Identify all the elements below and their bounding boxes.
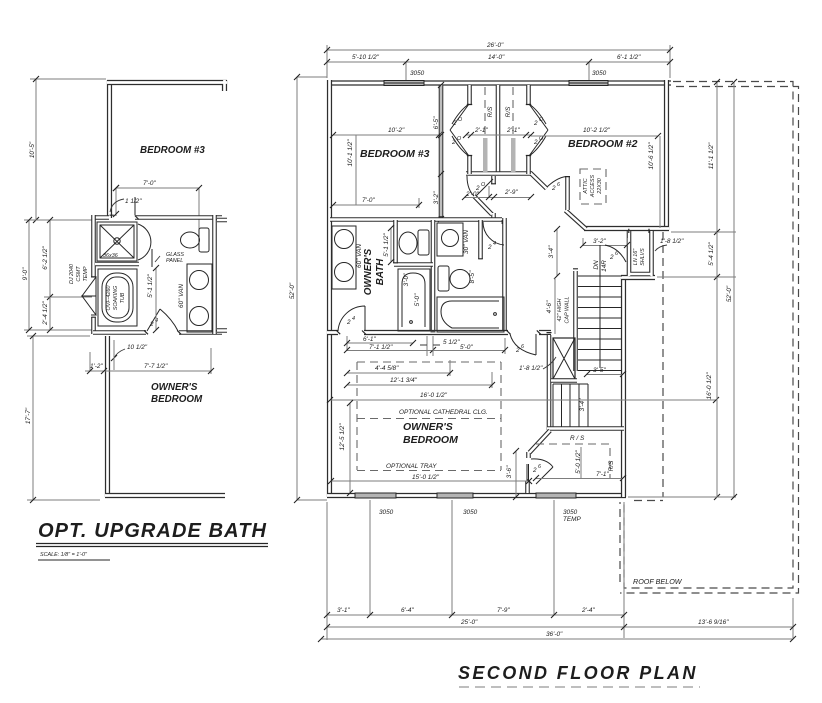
svg-text:2: 2 — [515, 347, 520, 354]
svg-text:2: 2 — [452, 120, 457, 127]
svg-text:15'-0 1/2": 15'-0 1/2" — [412, 474, 440, 481]
svg-text:14R: 14R — [601, 260, 608, 272]
svg-text:DJ 2040: DJ 2040 — [69, 264, 75, 284]
svg-text:4: 4 — [352, 316, 355, 322]
svg-text:5'-0 1/2": 5'-0 1/2" — [575, 450, 582, 474]
svg-text:6: 6 — [538, 464, 541, 470]
svg-text:3'-2": 3'-2" — [433, 191, 440, 204]
svg-text:11'-1 1/2": 11'-1 1/2" — [708, 142, 715, 169]
svg-text:36'-0": 36'-0" — [546, 631, 563, 638]
svg-text:1'-2": 1'-2" — [90, 363, 103, 370]
svg-text:OPT. UPGRADE BATH: OPT. UPGRADE BATH — [38, 520, 267, 542]
svg-text:CAP WALL: CAP WALL — [565, 297, 571, 324]
svg-text:3'-6": 3'-6" — [506, 465, 513, 478]
svg-text:5 1/2": 5 1/2" — [443, 339, 460, 346]
svg-text:1'-8 1/2": 1'-8 1/2" — [660, 238, 684, 245]
svg-text:2: 2 — [149, 321, 154, 328]
svg-text:1'-8 1/2": 1'-8 1/2" — [519, 365, 543, 372]
svg-text:4: 4 — [493, 241, 496, 247]
svg-text:4'-6": 4'-6" — [546, 300, 553, 313]
svg-text:5'-0": 5'-0" — [460, 344, 473, 351]
svg-text:PANEL: PANEL — [166, 258, 183, 264]
svg-text:R/S: R/S — [505, 106, 512, 117]
svg-text:7'-7 1/2": 7'-7 1/2" — [144, 363, 168, 370]
svg-text:3050: 3050 — [563, 509, 578, 516]
svg-text:TEMP: TEMP — [83, 266, 89, 281]
svg-text:2'-1": 2'-1" — [474, 127, 488, 134]
svg-text:52'-0": 52'-0" — [726, 285, 733, 302]
svg-text:17'-7": 17'-7" — [25, 407, 32, 424]
svg-text:4'-4 5/8": 4'-4 5/8" — [375, 365, 399, 372]
svg-text:BATH: BATH — [375, 258, 386, 285]
svg-text:ATTIC: ATTIC — [583, 178, 589, 194]
svg-text:SECOND FLOOR PLAN: SECOND FLOOR PLAN — [458, 663, 698, 683]
svg-text:3050: 3050 — [410, 70, 425, 77]
svg-text:2'-4 1/2": 2'-4 1/2" — [42, 301, 49, 326]
svg-text:1 1/2": 1 1/2" — [125, 198, 142, 205]
svg-text:LN 16": LN 16" — [633, 248, 639, 265]
svg-text:OPTIONAL CATHEDRAL CLG.: OPTIONAL CATHEDRAL CLG. — [399, 409, 488, 416]
svg-text:25'-0": 25'-0" — [460, 619, 478, 626]
svg-text:16'-0 1/2": 16'-0 1/2" — [420, 392, 448, 399]
svg-text:10'-2 1/2": 10'-2 1/2" — [583, 127, 611, 134]
svg-text:ROOF BELOW: ROOF BELOW — [633, 577, 683, 586]
svg-text:5'-0": 5'-0" — [414, 293, 421, 306]
svg-text:DN: DN — [593, 260, 600, 270]
svg-text:9'-0": 9'-0" — [22, 267, 29, 280]
svg-text:2'-9": 2'-9" — [504, 189, 518, 196]
svg-text:10'-1 1/2": 10'-1 1/2" — [347, 139, 354, 167]
svg-text:10'-5": 10'-5" — [29, 141, 36, 158]
svg-text:30" VAN: 30" VAN — [463, 230, 470, 254]
svg-text:6: 6 — [521, 344, 524, 350]
svg-text:7'-9": 7'-9" — [497, 607, 510, 614]
svg-text:12'-5 1/2": 12'-5 1/2" — [339, 423, 346, 451]
svg-text:2: 2 — [532, 467, 537, 474]
svg-text:2: 2 — [551, 185, 556, 192]
svg-text:SOAKING: SOAKING — [113, 286, 119, 311]
svg-text:16'-0 1/2": 16'-0 1/2" — [706, 372, 713, 400]
svg-text:CSMT: CSMT — [76, 266, 82, 282]
svg-text:7'-1": 7'-1" — [596, 471, 609, 478]
svg-text:R/S: R/S — [487, 106, 494, 117]
svg-text:52'-0": 52'-0" — [289, 282, 296, 299]
svg-text:BEDROOM #2: BEDROOM #2 — [568, 138, 638, 150]
svg-text:2'-4": 2'-4" — [581, 607, 595, 614]
svg-text:3'-0": 3'-0" — [403, 273, 410, 286]
svg-text:3'-4": 3'-4" — [548, 245, 555, 258]
svg-text:SHLVS: SHLVS — [640, 248, 646, 266]
svg-text:BEDROOM #3: BEDROOM #3 — [360, 148, 430, 160]
svg-text:26'-0": 26'-0" — [486, 42, 504, 49]
svg-text:2: 2 — [609, 254, 614, 261]
svg-text:SCALE: 1/8" = 1'-0": SCALE: 1/8" = 1'-0" — [40, 552, 88, 558]
svg-text:3'-2": 3'-2" — [593, 238, 606, 245]
svg-text:8'-5": 8'-5" — [469, 270, 476, 283]
svg-text:13'-6 9/16": 13'-6 9/16" — [698, 619, 729, 626]
svg-text:60" VAN: 60" VAN — [356, 244, 363, 268]
svg-text:BEDROOM: BEDROOM — [403, 434, 458, 446]
svg-text:2: 2 — [451, 139, 456, 146]
svg-text:60" VAN: 60" VAN — [178, 284, 185, 308]
svg-text:ACCESS: ACCESS — [590, 175, 596, 199]
svg-text:2: 2 — [346, 319, 351, 326]
svg-text:42" HIGH: 42" HIGH — [557, 298, 563, 321]
svg-text:10'-6 1/2": 10'-6 1/2" — [648, 142, 655, 170]
svg-text:3050: 3050 — [379, 509, 394, 516]
svg-text:OWNER'S: OWNER'S — [363, 248, 374, 295]
svg-text:5'-10 1/2": 5'-10 1/2" — [352, 54, 380, 61]
svg-text:OVF-4260: OVF-4260 — [106, 286, 112, 311]
svg-text:7'-0": 7'-0" — [362, 197, 375, 204]
svg-text:R / S: R / S — [570, 435, 585, 442]
svg-text:2: 2 — [533, 120, 538, 127]
svg-text:TUB: TUB — [120, 292, 126, 303]
svg-text:7'-0": 7'-0" — [143, 180, 156, 187]
svg-text:OWNER'S: OWNER'S — [151, 382, 198, 393]
svg-text:R/S: R/S — [608, 460, 615, 471]
svg-text:OWNER'S: OWNER'S — [403, 421, 453, 433]
svg-text:10 1/2": 10 1/2" — [127, 344, 148, 351]
svg-text:7'-1 1/2": 7'-1 1/2" — [369, 344, 393, 351]
svg-text:5'-1 1/2": 5'-1 1/2" — [147, 274, 154, 298]
svg-text:22X30: 22X30 — [597, 178, 603, 195]
svg-text:6'-1 1/2": 6'-1 1/2" — [617, 54, 641, 61]
svg-text:10'-2": 10'-2" — [388, 127, 405, 134]
svg-text:14'-0": 14'-0" — [488, 54, 505, 61]
svg-text:5'-4 1/2": 5'-4 1/2" — [708, 242, 715, 266]
svg-text:12'-1 3/4": 12'-1 3/4" — [390, 377, 418, 384]
svg-text:6: 6 — [615, 251, 618, 257]
svg-text:3'-5": 3'-5" — [593, 367, 606, 374]
svg-text:2: 2 — [487, 244, 492, 251]
svg-text:BEDROOM: BEDROOM — [151, 394, 203, 405]
svg-text:OPTIONAL TRAY: OPTIONAL TRAY — [386, 463, 437, 470]
svg-text:3'-1": 3'-1" — [337, 607, 350, 614]
svg-text:3050: 3050 — [592, 70, 607, 77]
svg-text:6: 6 — [557, 182, 560, 188]
svg-text:BEDROOM #3: BEDROOM #3 — [140, 145, 205, 156]
svg-text:6'-4": 6'-4" — [401, 607, 414, 614]
svg-text:5'-1 1/2": 5'-1 1/2" — [383, 233, 390, 257]
svg-text:2: 2 — [533, 139, 538, 146]
svg-text:6'-5": 6'-5" — [433, 116, 440, 129]
svg-text:2'-1": 2'-1" — [506, 127, 520, 134]
svg-text:36x36: 36x36 — [103, 253, 118, 259]
svg-text:TEMP: TEMP — [563, 516, 581, 523]
svg-text:6'-2 1/2": 6'-2 1/2" — [42, 246, 49, 270]
svg-text:3050: 3050 — [463, 509, 478, 516]
svg-text:6'-1": 6'-1" — [363, 336, 376, 343]
